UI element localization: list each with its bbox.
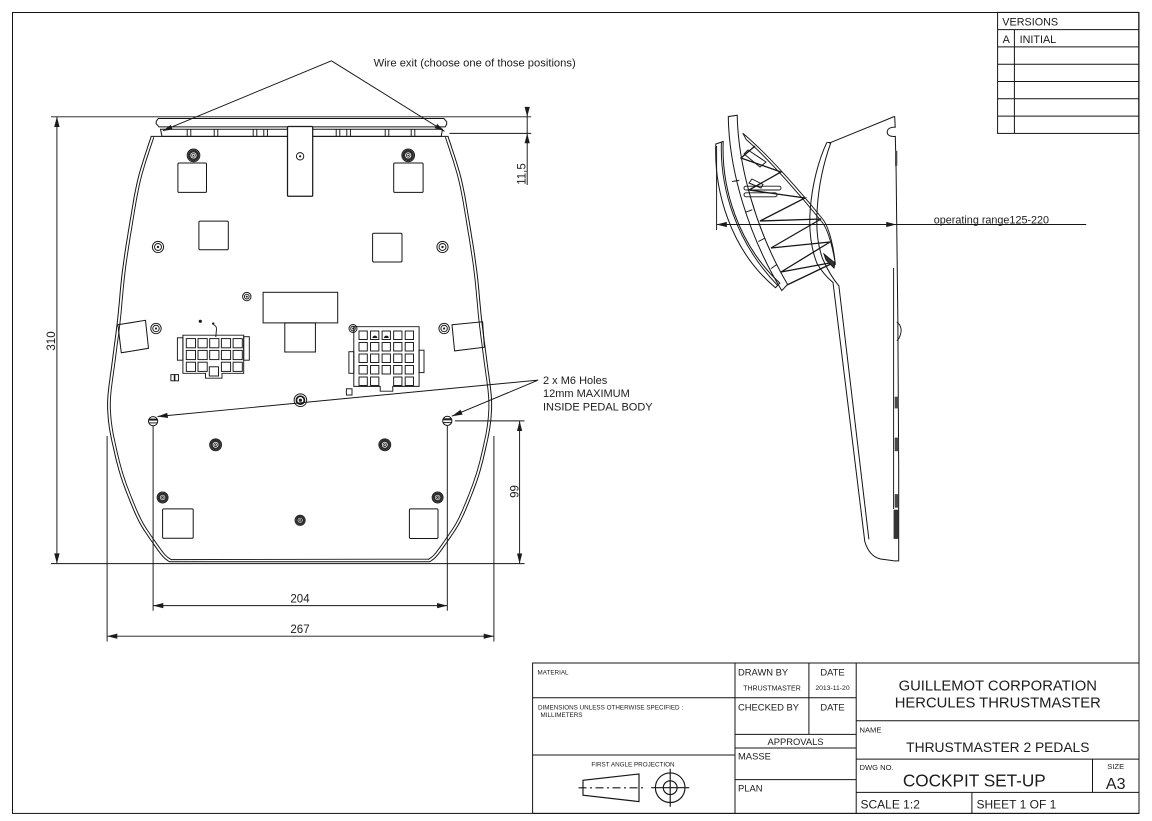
svg-text:SIZE: SIZE	[1107, 762, 1124, 771]
svg-text:PLAN: PLAN	[738, 783, 763, 794]
svg-text:2013-11-20: 2013-11-20	[815, 685, 849, 692]
svg-text:A: A	[1003, 34, 1011, 46]
svg-text:NAME: NAME	[860, 726, 882, 735]
svg-text:APPROVALS: APPROVALS	[767, 736, 823, 747]
svg-text:operating range125-220: operating range125-220	[934, 214, 1049, 226]
svg-text:2 x M6 Holes: 2 x M6 Holes	[543, 375, 608, 387]
svg-text:204: 204	[290, 593, 310, 605]
svg-text:99: 99	[509, 485, 521, 498]
svg-text:12mm MAXIMUM: 12mm MAXIMUM	[543, 388, 630, 400]
svg-text:DATE: DATE	[820, 667, 844, 678]
svg-text:DRAWN BY: DRAWN BY	[738, 667, 789, 678]
svg-text:MATERIAL: MATERIAL	[538, 670, 570, 677]
svg-text:DATE: DATE	[820, 702, 844, 713]
svg-text:GUILLEMOT CORPORATION: GUILLEMOT CORPORATION	[899, 679, 1097, 695]
svg-text:310: 310	[46, 331, 58, 350]
svg-text:MILLIMETERS: MILLIMETERS	[541, 712, 583, 719]
svg-text:CHECKED BY: CHECKED BY	[738, 702, 800, 713]
svg-text:VERSIONS: VERSIONS	[1002, 17, 1058, 29]
svg-text:THRUSTMASTER 2 PEDALS: THRUSTMASTER 2 PEDALS	[906, 740, 1089, 755]
svg-text:Wire exit (choose one of those: Wire exit (choose one of those positions…	[374, 57, 576, 69]
svg-text:FIRST ANGLE PROJECTION: FIRST ANGLE PROJECTION	[591, 762, 675, 769]
svg-text:SCALE 1:2: SCALE 1:2	[861, 798, 921, 812]
svg-text:267: 267	[290, 624, 309, 636]
svg-text:HERCULES THRUSTMASTER: HERCULES THRUSTMASTER	[895, 696, 1101, 712]
svg-text:INSIDE PEDAL BODY: INSIDE PEDAL BODY	[543, 402, 653, 414]
svg-text:11,5: 11,5	[516, 163, 528, 185]
svg-text:MASSE: MASSE	[738, 751, 771, 762]
svg-text:A3: A3	[1106, 776, 1126, 793]
svg-text:COCKPIT SET-UP: COCKPIT SET-UP	[903, 771, 1046, 791]
svg-text:DIMENSIONS UNLESS OTHERWISE S: DIMENSIONS UNLESS OTHERWISE SPECIFIED :	[538, 705, 683, 712]
svg-text:SHEET 1 OF 1: SHEET 1 OF 1	[977, 798, 1057, 812]
svg-text:DWG NO.: DWG NO.	[860, 763, 894, 772]
svg-text:INITIAL: INITIAL	[1020, 34, 1057, 46]
svg-text:THRUSTMASTER: THRUSTMASTER	[743, 686, 801, 693]
